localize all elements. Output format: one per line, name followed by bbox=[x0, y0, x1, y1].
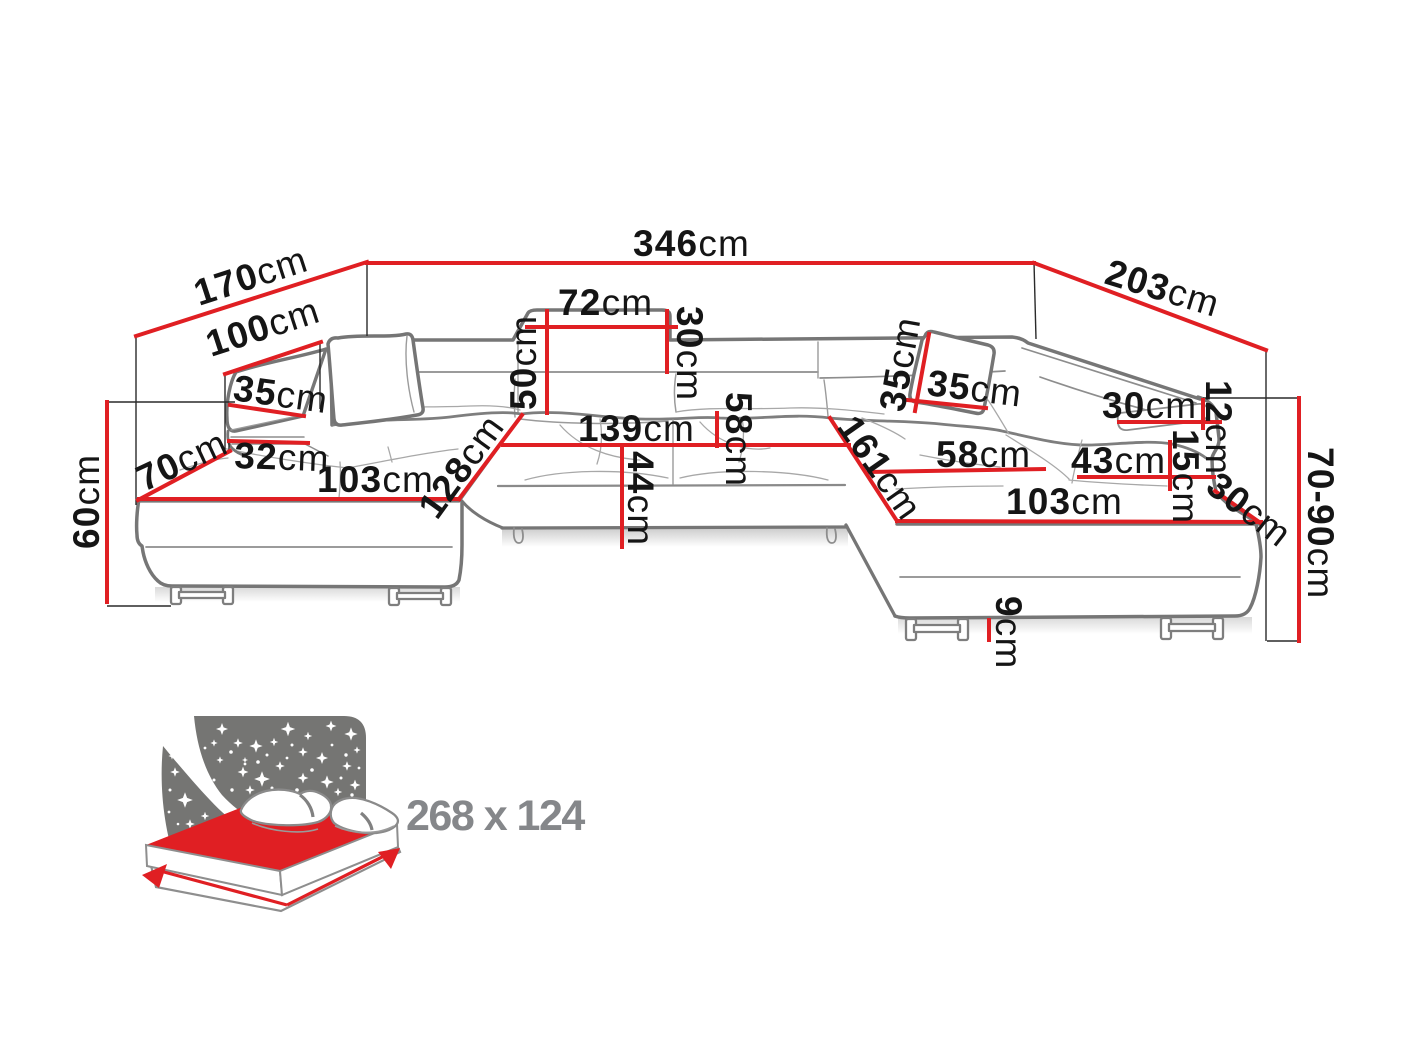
svg-text:103cm: 103cm bbox=[1006, 481, 1123, 522]
svg-text:44cm: 44cm bbox=[620, 451, 661, 546]
svg-text:15cm: 15cm bbox=[1165, 429, 1206, 524]
svg-text:268 x 124: 268 x 124 bbox=[406, 792, 585, 840]
svg-text:58cm: 58cm bbox=[936, 434, 1031, 475]
svg-text:30cm: 30cm bbox=[669, 306, 710, 401]
svg-text:70-90cm: 70-90cm bbox=[1300, 447, 1341, 599]
svg-text:50cm: 50cm bbox=[503, 315, 544, 410]
svg-text:346cm: 346cm bbox=[633, 223, 750, 264]
svg-text:72cm: 72cm bbox=[558, 282, 653, 323]
svg-text:43cm: 43cm bbox=[1071, 440, 1166, 481]
svg-text:32cm: 32cm bbox=[234, 435, 331, 479]
svg-text:60cm: 60cm bbox=[66, 454, 107, 549]
svg-text:9cm: 9cm bbox=[988, 596, 1029, 670]
svg-text:139cm: 139cm bbox=[578, 408, 695, 449]
svg-text:58cm: 58cm bbox=[718, 392, 759, 487]
svg-text:30cm: 30cm bbox=[1102, 385, 1197, 426]
